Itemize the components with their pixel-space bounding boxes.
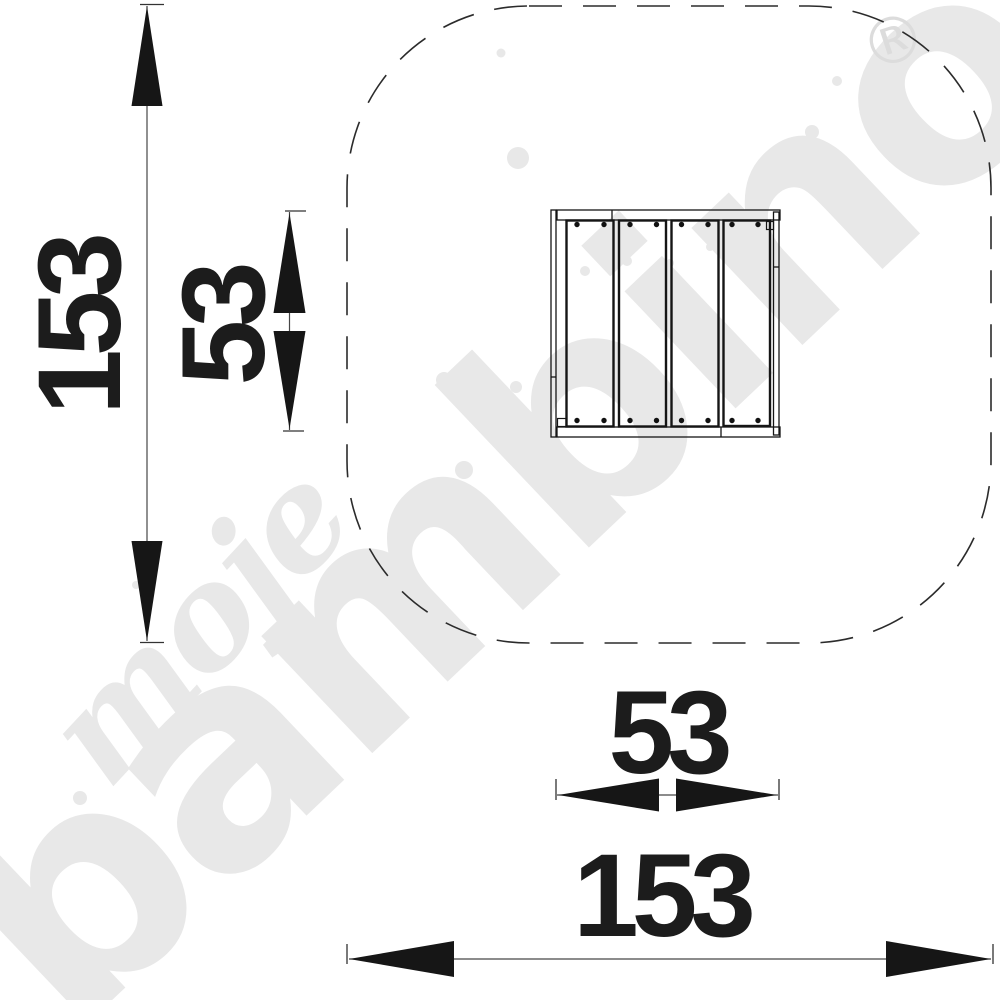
frame-board-left xyxy=(551,210,556,437)
frame-board-bottom xyxy=(557,427,780,437)
plank xyxy=(672,221,719,427)
screw-dot xyxy=(654,418,659,423)
arrow-up-icon xyxy=(132,6,163,106)
screw-dot xyxy=(654,222,659,227)
screw-dot xyxy=(679,222,684,227)
plank xyxy=(567,221,614,427)
screw-dots xyxy=(574,222,760,423)
screw-dot xyxy=(627,222,632,227)
dimension-label-area-height: 153 xyxy=(21,239,139,415)
screw-dot xyxy=(729,222,734,227)
screw-dot xyxy=(601,418,606,423)
screw-dot xyxy=(755,222,760,227)
screw-dot xyxy=(729,418,734,423)
screw-dot xyxy=(755,418,760,423)
plank xyxy=(724,221,771,427)
frame-board-right xyxy=(774,212,780,435)
platform-top-view xyxy=(551,210,780,437)
arrow-left-icon xyxy=(349,941,454,977)
dimension-label-inner-width: 53 xyxy=(608,674,725,792)
arrow-right-icon xyxy=(886,941,991,977)
dimension-label-inner-height: 53 xyxy=(165,268,283,385)
plank xyxy=(619,221,666,427)
frame-board-top xyxy=(557,210,780,220)
safety-zone-dashed-boundary xyxy=(347,6,991,643)
corner-block xyxy=(558,419,567,427)
screw-dot xyxy=(574,418,579,423)
screw-dot xyxy=(679,418,684,423)
screw-dot xyxy=(705,418,710,423)
arrow-down-icon xyxy=(132,541,163,641)
drawing-layer xyxy=(0,0,1000,1000)
screw-dot xyxy=(705,222,710,227)
screw-dot xyxy=(627,418,632,423)
dimension-label-area-width: 153 xyxy=(573,837,749,955)
technical-drawing-canvas: bambino moje ® xyxy=(0,0,1000,1000)
screw-dot xyxy=(601,222,606,227)
screw-dot xyxy=(574,222,579,227)
